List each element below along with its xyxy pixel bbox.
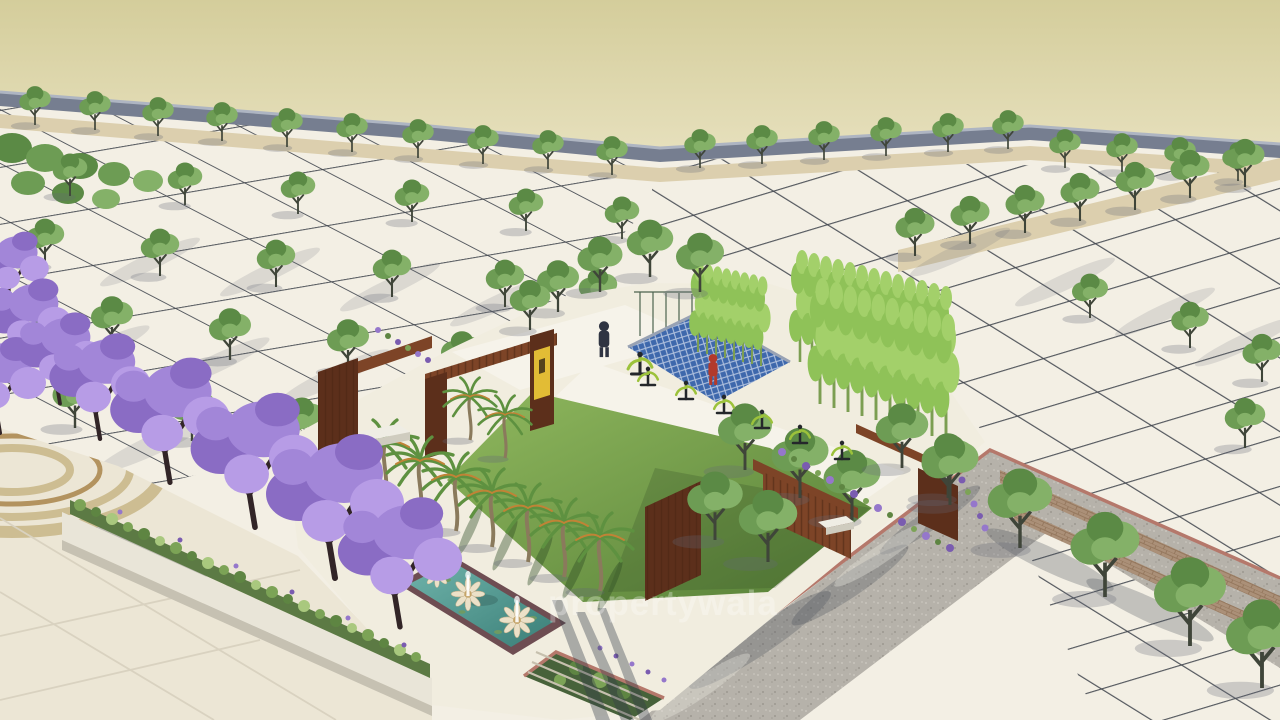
gate-sign-glyph [539, 358, 545, 374]
render-canvas: propertywala [0, 0, 1280, 720]
site-render [0, 0, 1280, 720]
